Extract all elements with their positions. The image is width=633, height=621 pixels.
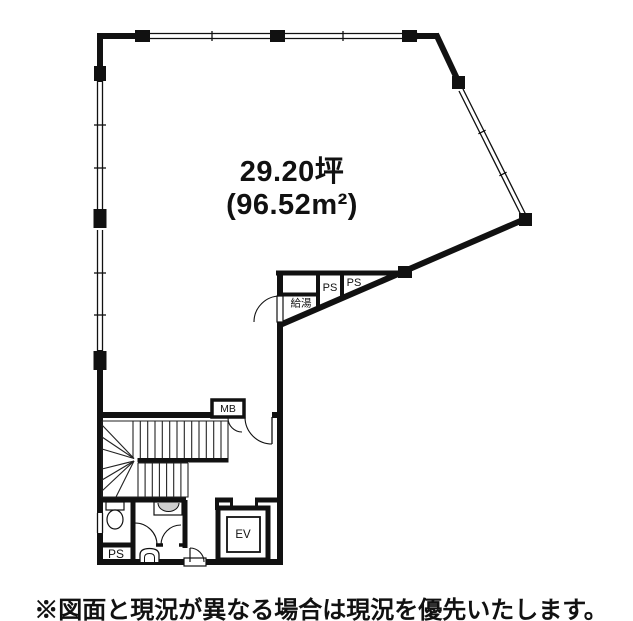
wall-mullion-blocks (94, 30, 533, 507)
door-arc-icon (228, 418, 242, 432)
room-label-ps-2: PS (347, 277, 362, 289)
hall-door (245, 417, 272, 444)
window-lines (94, 31, 526, 533)
wc-stall-doors (135, 523, 181, 545)
floor-plan-drawing (0, 0, 633, 621)
floor-plan-page: 29.20坪 (96.52m²) 給湯 PS PS MB EV PS ※図面と現… (0, 0, 633, 621)
toilet-left-icon (106, 502, 124, 529)
stair-handrail (138, 458, 229, 463)
area-square-meters: (96.52m²) (226, 189, 358, 222)
room-label-ev: EV (235, 529, 250, 541)
room-label-ps-3: PS (108, 547, 124, 561)
disclaimer-caption: ※図面と現況が異なる場合は現況を優先いたします。 (34, 590, 608, 621)
room-label-mb: MB (220, 403, 236, 415)
area-label: 29.20坪 (96.52m²) (226, 156, 358, 222)
door-arc-icon (245, 417, 272, 444)
room-label-kyuto: 給湯 (291, 296, 312, 311)
kyuto-door (254, 296, 283, 322)
door-arc-icon (254, 296, 280, 322)
door-arc-icon (161, 525, 181, 545)
toilet-middle-icon (140, 549, 159, 563)
room-label-ps-1: PS (323, 282, 338, 294)
area-tsubo: 29.20坪 (226, 156, 358, 189)
sink-icon (154, 502, 182, 515)
ev-hall-door (184, 548, 206, 566)
door-arc-icon (135, 523, 157, 545)
